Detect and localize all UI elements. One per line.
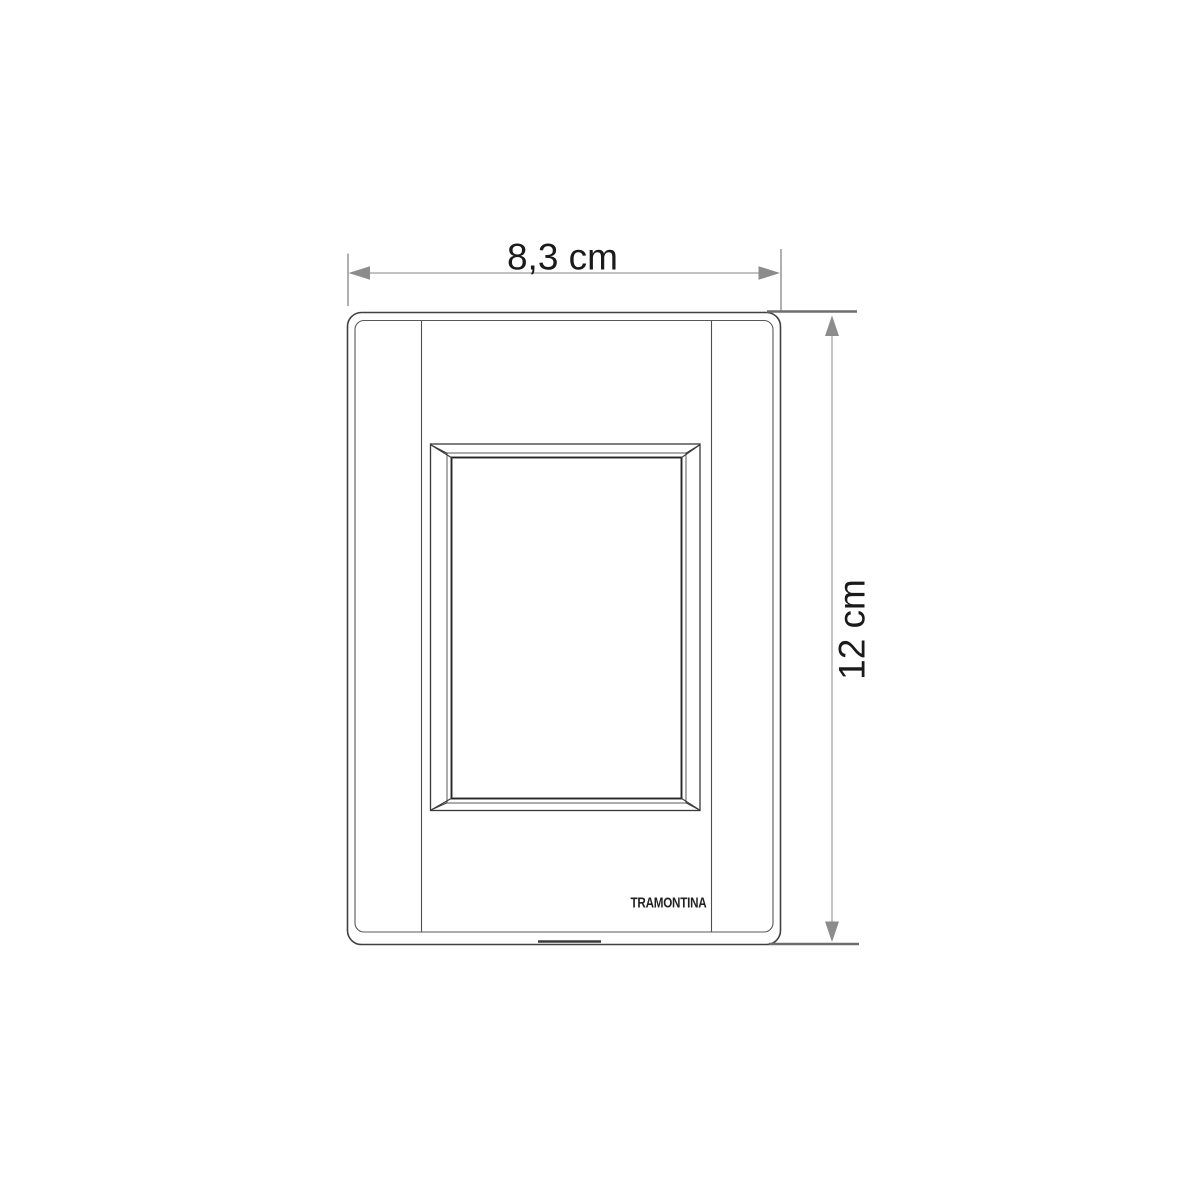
plate-outer-outline (348, 313, 781, 945)
technical-drawing-canvas: TRAMONTINA 8,3 cm 12 cm (0, 0, 1200, 1200)
width-dimension: 8,3 cm (348, 237, 781, 312)
arrow-left-icon (349, 266, 371, 280)
arrow-right-icon (759, 266, 781, 280)
brand-logo-text: TRAMONTINA (631, 895, 707, 912)
height-dimension-label: 12 cm (832, 579, 873, 680)
wall-plate-dimension-diagram: TRAMONTINA 8,3 cm 12 cm (0, 0, 1200, 1200)
width-dimension-label: 8,3 cm (507, 237, 618, 278)
arrow-down-icon (825, 922, 839, 943)
arrow-up-icon (825, 316, 839, 337)
height-dimension: 12 cm (767, 312, 873, 945)
wall-plate-drawing: TRAMONTINA (348, 313, 781, 945)
